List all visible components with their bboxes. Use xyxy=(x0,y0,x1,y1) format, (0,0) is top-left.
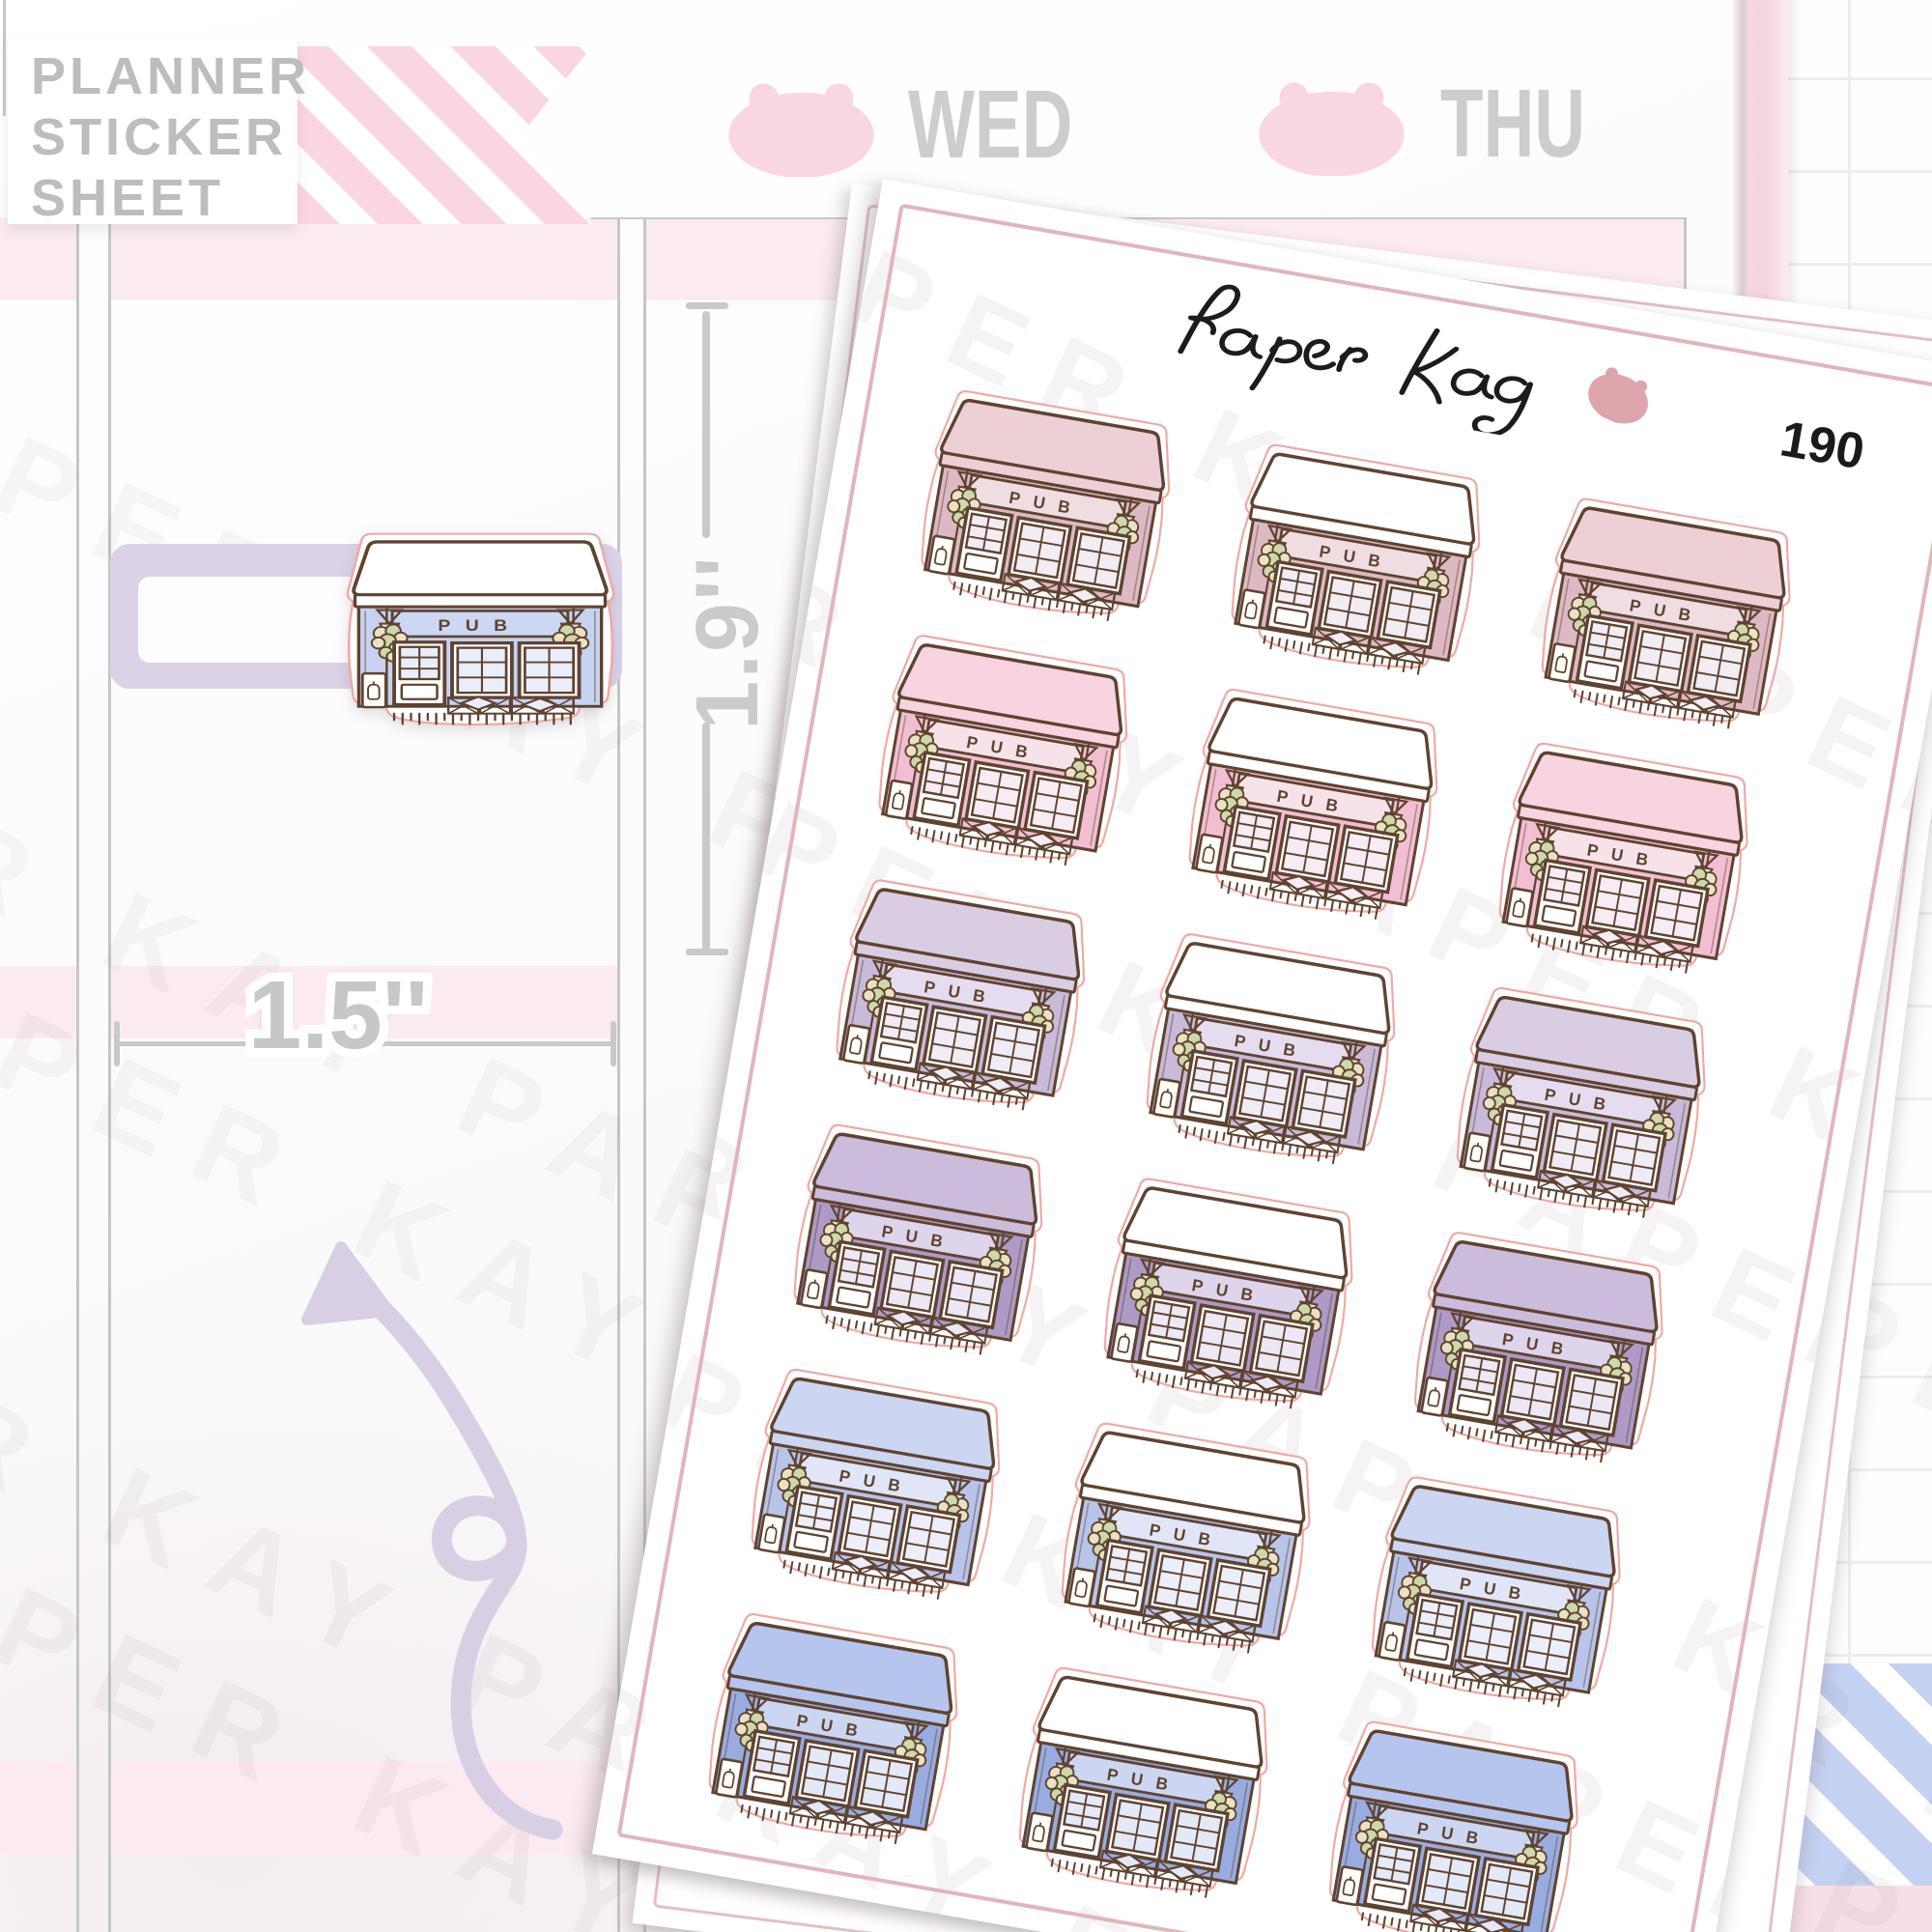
svg-text:1.5'': 1.5'' xyxy=(248,961,429,1069)
